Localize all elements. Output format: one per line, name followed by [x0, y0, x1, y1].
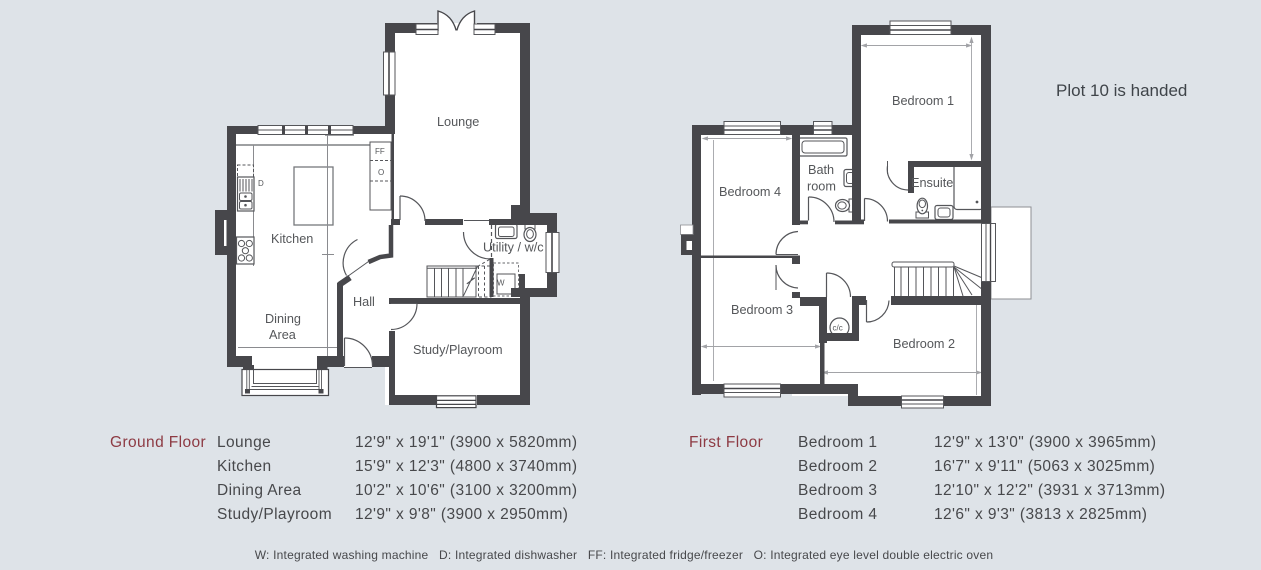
svg-text:Lounge: Lounge	[217, 434, 271, 451]
svg-text:O: O	[378, 168, 384, 177]
svg-text:Study/Playroom: Study/Playroom	[413, 343, 503, 357]
svg-text:Kitchen: Kitchen	[217, 458, 272, 475]
svg-text:c/c: c/c	[833, 324, 843, 333]
svg-text:room: room	[807, 180, 836, 194]
svg-text:Kitchen: Kitchen	[271, 232, 313, 246]
svg-text:Lounge: Lounge	[437, 115, 479, 129]
svg-text:Plot 10 is handed: Plot 10 is handed	[1056, 81, 1187, 100]
svg-text:Dining: Dining	[265, 312, 301, 326]
svg-text:12'9" x 19'1" (3900 x 5820mm): 12'9" x 19'1" (3900 x 5820mm)	[355, 434, 577, 451]
svg-text:W: Integrated washing machine: W: Integrated washing machine D: Integra…	[255, 548, 994, 562]
svg-text:Ground Floor: Ground Floor	[110, 434, 206, 451]
svg-text:Utility / w/c: Utility / w/c	[483, 241, 544, 255]
svg-text:Dining Area: Dining Area	[217, 482, 302, 499]
svg-text:16'7" x 9'11" (5063 x 3025mm): 16'7" x 9'11" (5063 x 3025mm)	[934, 458, 1155, 475]
svg-text:Hall: Hall	[353, 295, 375, 309]
svg-text:Area: Area	[269, 328, 297, 342]
svg-text:Bedroom 4: Bedroom 4	[798, 506, 877, 523]
svg-text:Bedroom 1: Bedroom 1	[798, 434, 877, 451]
svg-text:12'10" x 12'2" (3931 x 3713mm): 12'10" x 12'2" (3931 x 3713mm)	[934, 482, 1165, 499]
svg-text:First Floor: First Floor	[689, 434, 763, 451]
svg-text:15'9" x 12'3" (4800 x 3740mm): 15'9" x 12'3" (4800 x 3740mm)	[355, 458, 577, 475]
svg-text:Bedroom 1: Bedroom 1	[892, 94, 954, 108]
svg-text:Bedroom 2: Bedroom 2	[798, 458, 877, 475]
svg-text:Study/Playroom: Study/Playroom	[217, 506, 332, 523]
svg-text:12'9" x 13'0" (3900 x 3965mm): 12'9" x 13'0" (3900 x 3965mm)	[934, 434, 1156, 451]
svg-text:10'2" x 10'6" (3100 x 3200mm): 10'2" x 10'6" (3100 x 3200mm)	[355, 482, 577, 499]
svg-text:Ensuite: Ensuite	[911, 176, 953, 190]
svg-text:D: D	[258, 179, 264, 188]
svg-text:FF: FF	[375, 147, 385, 156]
svg-text:W: W	[497, 279, 505, 288]
svg-text:Bedroom 4: Bedroom 4	[719, 185, 781, 199]
svg-text:12'6" x 9'3" (3813 x 2825mm): 12'6" x 9'3" (3813 x 2825mm)	[934, 506, 1147, 523]
svg-text:12'9" x 9'8" (3900 x 2950mm): 12'9" x 9'8" (3900 x 2950mm)	[355, 506, 568, 523]
svg-text:Bedroom 3: Bedroom 3	[798, 482, 877, 499]
svg-text:Bedroom 3: Bedroom 3	[731, 303, 793, 317]
svg-text:Bath: Bath	[808, 163, 834, 177]
svg-text:Bedroom 2: Bedroom 2	[893, 337, 955, 351]
